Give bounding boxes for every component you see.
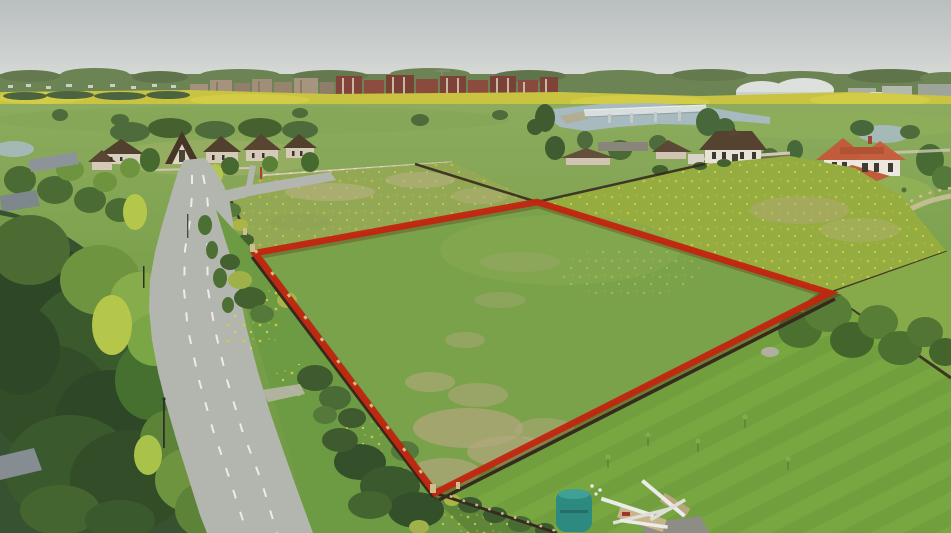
aerial-photo-stage [0, 0, 951, 533]
red-pole [260, 167, 262, 179]
aerial-photo [0, 0, 951, 533]
sky [0, 0, 951, 80]
